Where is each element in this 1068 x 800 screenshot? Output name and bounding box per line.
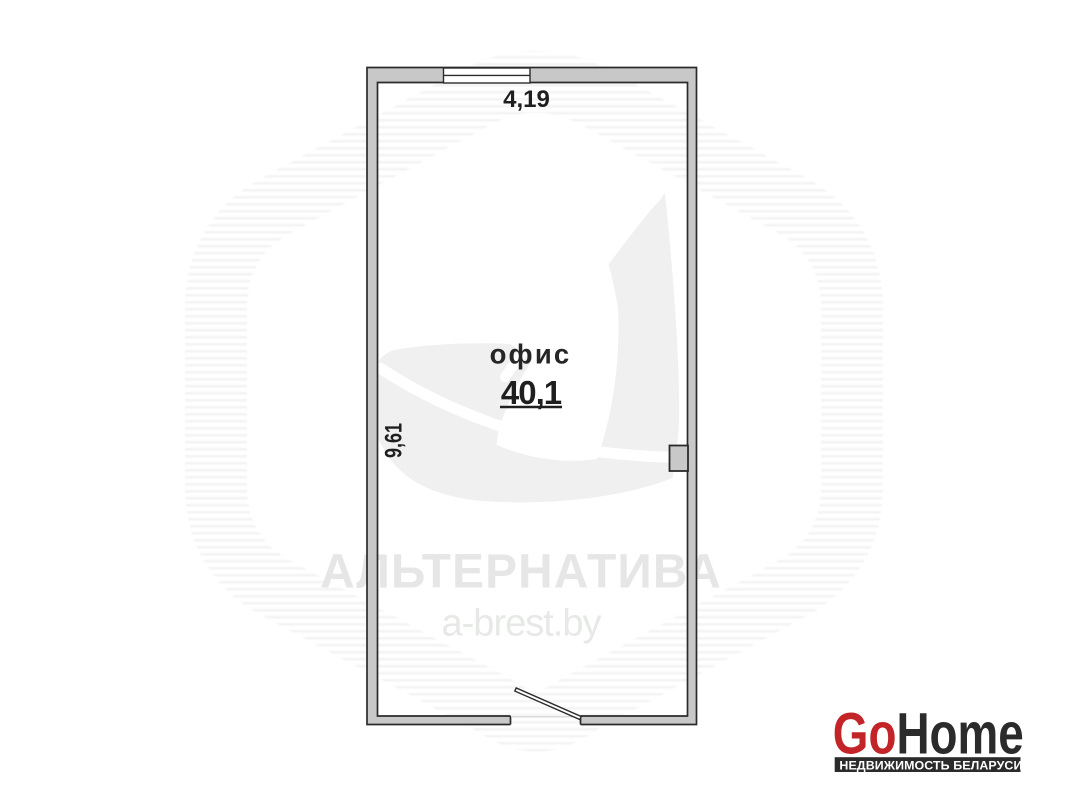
- svg-text:9,61: 9,61: [381, 423, 407, 458]
- svg-text:4,19: 4,19: [503, 86, 550, 113]
- svg-text:GoHome: GoHome: [833, 701, 1024, 767]
- svg-text:офис: офис: [490, 339, 572, 370]
- svg-text:АЛЬТЕРНАТИВА: АЛЬТЕРНАТИВА: [320, 546, 722, 599]
- svg-text:a-brest.by: a-brest.by: [442, 603, 602, 645]
- svg-text:40,1: 40,1: [501, 374, 562, 411]
- svg-text:НЕДВИЖИМОСТЬ БЕЛАРУСИ: НЕДВИЖИМОСТЬ БЕЛАРУСИ: [839, 758, 1022, 772]
